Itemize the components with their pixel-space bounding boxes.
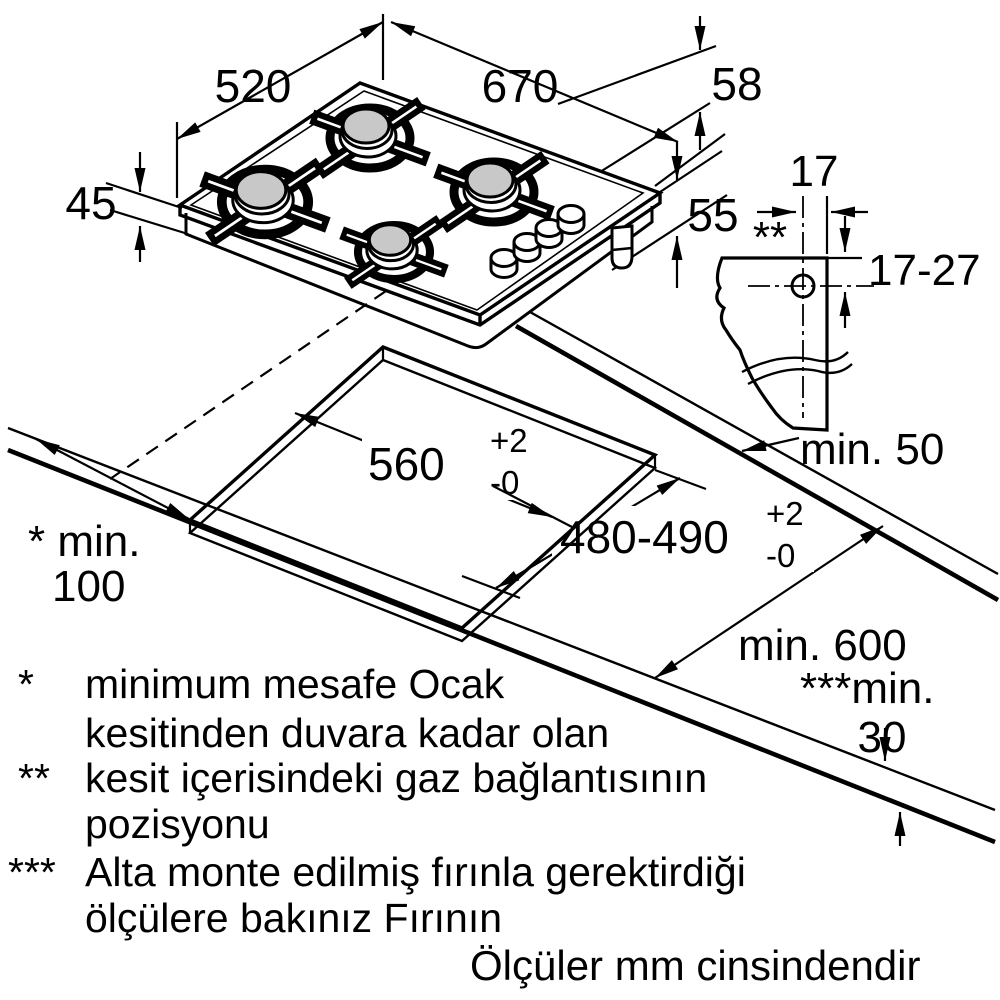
burner-cap bbox=[343, 109, 389, 143]
installation-diagram: 520 670 58 45 55 17 ** 17-27 560 +2 -0 4… bbox=[0, 0, 1000, 1000]
dim-670-label: 670 bbox=[482, 60, 559, 112]
dim-560-tol-plus: +2 bbox=[490, 422, 528, 459]
footnote-3-line2: ölçülere bakınız Fırının bbox=[85, 895, 502, 941]
footnote-1-line1: minimum mesafe Ocak bbox=[85, 661, 505, 707]
min-100-label: * min. bbox=[28, 517, 140, 566]
dim-560-tol-minus: -0 bbox=[490, 464, 519, 501]
gas-connection-leg bbox=[612, 226, 632, 268]
dim-480-490-tol-minus: -0 bbox=[766, 537, 795, 574]
burner-cap bbox=[369, 225, 410, 256]
min-30-label: ***min. bbox=[800, 664, 935, 713]
footnote-2-line1: kesit içerisindeki gaz bağlantısının bbox=[85, 755, 707, 801]
min-30-value: 30 bbox=[858, 713, 907, 762]
dim-45-label: 45 bbox=[65, 177, 116, 229]
footnote-2-line2: pozisyonu bbox=[85, 801, 270, 847]
burner-cap bbox=[236, 172, 286, 209]
dim-480-490-label: 480-490 bbox=[560, 511, 729, 563]
footnote-3-line1: Alta monte edilmiş fırınla gerektirdiği bbox=[85, 849, 746, 895]
units-note: Ölçüler mm cinsindendir bbox=[470, 942, 920, 989]
footnote-1-marker: * bbox=[18, 661, 34, 707]
dim-480-490-tol-plus: +2 bbox=[766, 495, 804, 532]
footnote-3-marker: *** bbox=[8, 849, 56, 895]
min-600-label: min. 600 bbox=[738, 621, 907, 670]
min-100-value: 100 bbox=[52, 562, 125, 611]
dim-17-27-label: 17-27 bbox=[868, 246, 981, 295]
burner-cap bbox=[467, 163, 513, 197]
min-50-label: min. 50 bbox=[800, 425, 944, 474]
gas-position-marker: ** bbox=[753, 213, 787, 262]
diagram-canvas: 520 670 58 45 55 17 ** 17-27 560 +2 -0 4… bbox=[0, 0, 1000, 1000]
dim-58-label: 58 bbox=[711, 58, 762, 110]
dim-17-label: 17 bbox=[790, 147, 839, 196]
dim-55-label: 55 bbox=[687, 189, 738, 241]
control-knob bbox=[558, 206, 584, 234]
knob-top bbox=[558, 206, 584, 223]
dim-520-label: 520 bbox=[215, 60, 292, 112]
footnote-1-line2: kesitinden duvara kadar olan bbox=[85, 710, 609, 756]
footnote-2-marker: ** bbox=[18, 755, 50, 801]
dim-560-label: 560 bbox=[368, 438, 445, 490]
